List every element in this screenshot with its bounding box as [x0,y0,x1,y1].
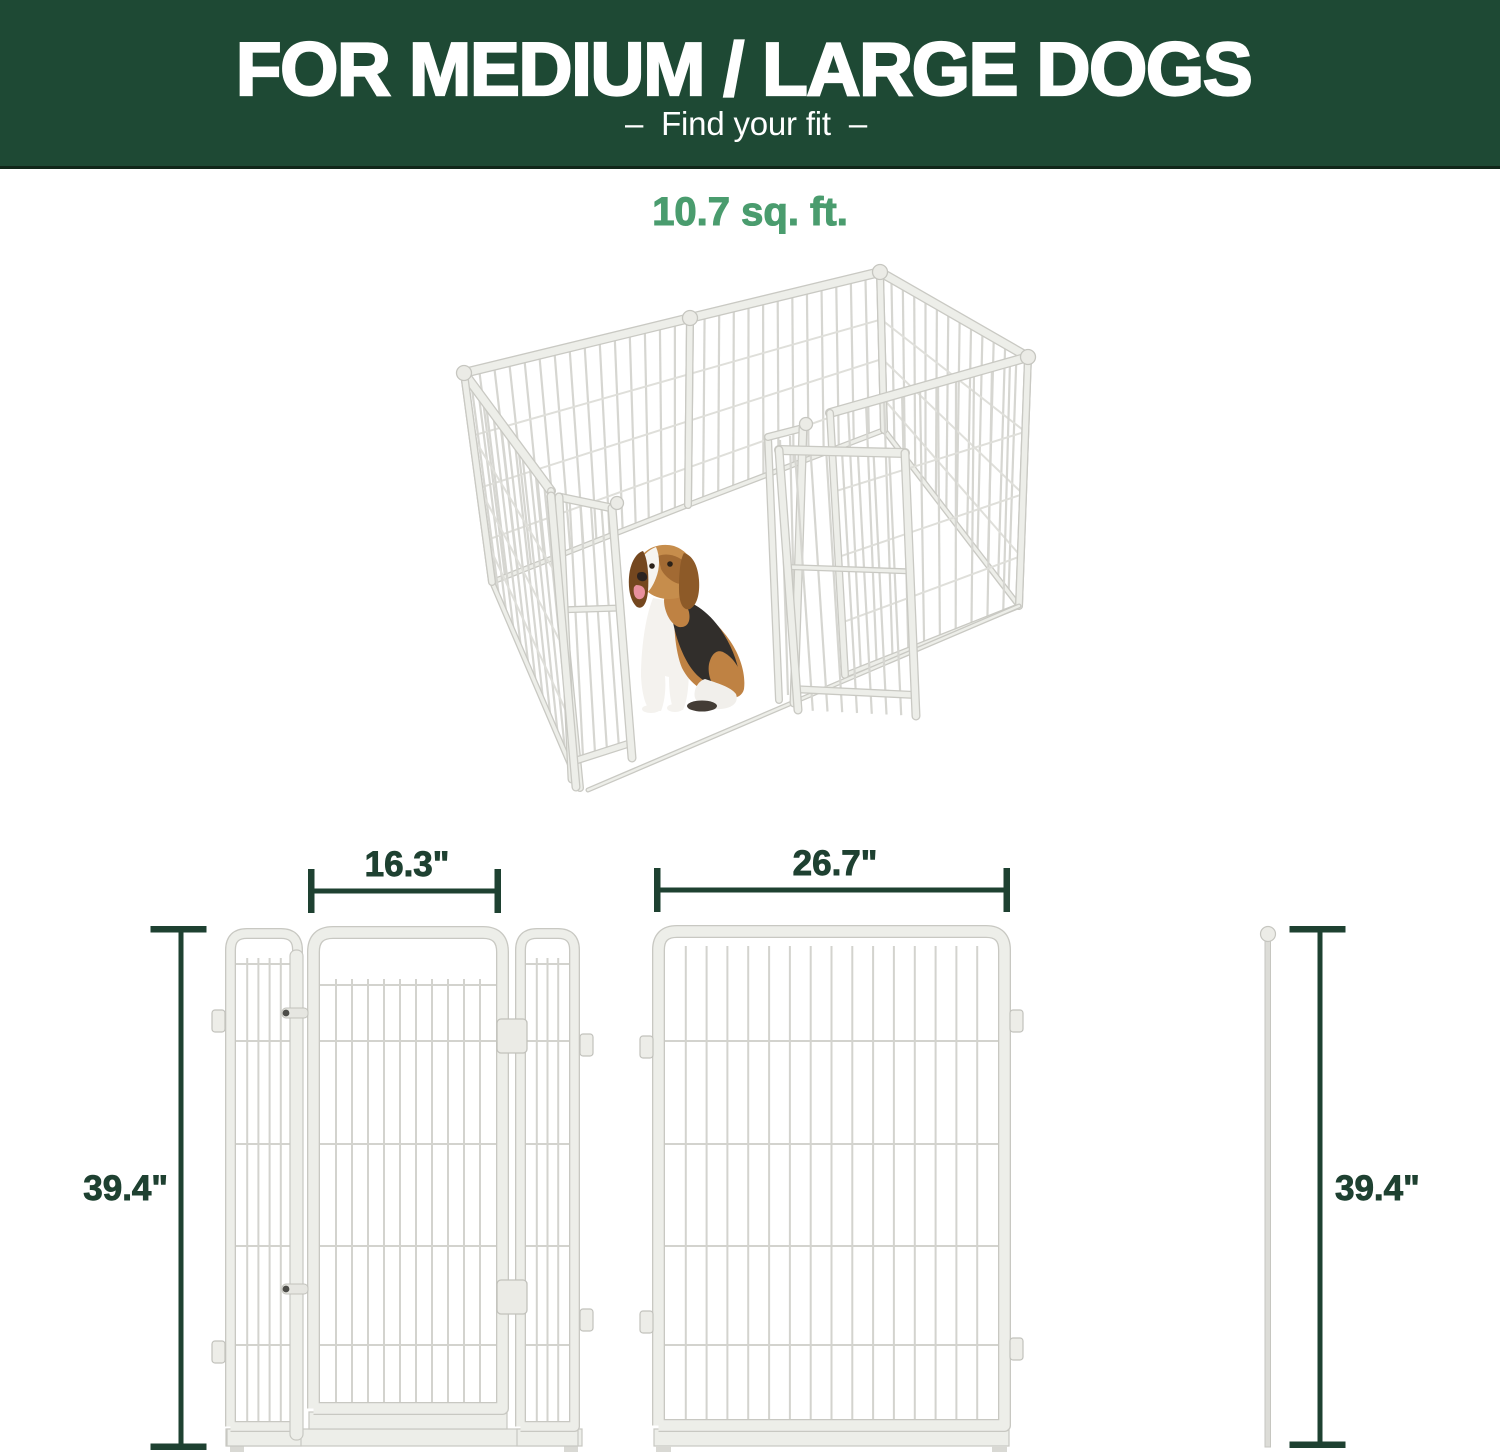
svg-text:16.3": 16.3" [365,845,450,884]
svg-text:39.4": 39.4" [83,1169,168,1208]
svg-text:39.4": 39.4" [1335,1169,1420,1208]
svg-text:26.7": 26.7" [793,844,878,883]
